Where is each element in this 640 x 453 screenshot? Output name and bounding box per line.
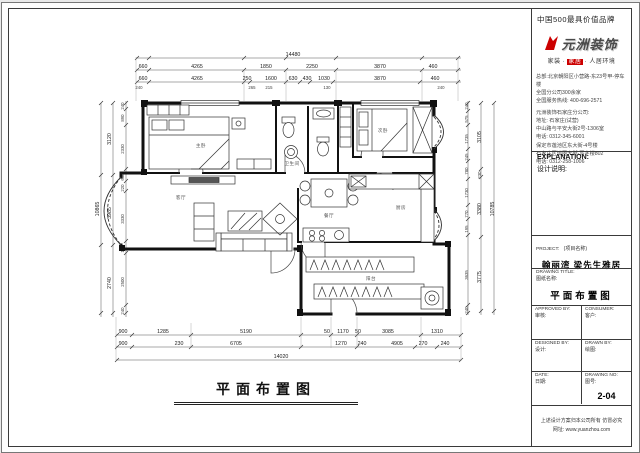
dim-label: 2330: [120, 144, 125, 154]
bed-icon: [149, 117, 229, 169]
consumer-cell: CONSUMER: 客户:: [581, 305, 631, 339]
dimension-top: [135, 56, 461, 101]
drawing-no-cn: 图号:: [585, 378, 628, 385]
dim-label: 1030: [318, 76, 330, 82]
dim-label: 14480: [286, 52, 301, 58]
dim-label: 240: [441, 341, 450, 347]
dim-label: 3120: [107, 133, 113, 145]
designed-by-cell: DESIGNED BY: 设计:: [532, 339, 581, 371]
dim-label: 5190: [240, 329, 252, 335]
project-section: PROJECT: (项目名称) 翰丽湾 梁先生雅居: [532, 235, 631, 267]
dim-label: 4905: [391, 341, 403, 347]
coffee-table-icon: [228, 211, 262, 231]
dim-label: 430: [303, 76, 312, 82]
dim-label: 4265: [191, 76, 203, 82]
dim-label: 890: [120, 114, 125, 122]
website-line: 网址: www.yuanzhou.com: [532, 426, 631, 435]
dim-label: 3870: [374, 76, 386, 82]
dim-label: 3870: [374, 64, 386, 70]
dim-label: 3085: [382, 329, 394, 335]
dim-label: 10865: [95, 202, 101, 217]
explanation-label: EXPLANATION:: [537, 154, 626, 161]
explanation-section: EXPLANATION: 设计说明:: [532, 151, 631, 185]
signature-table: APPROVED BY: 审核: CONSUMER: 客户: DESIGNED …: [532, 305, 631, 404]
dim-label: 240: [464, 102, 469, 110]
contact-line: 电话: 0312-345-6001: [536, 133, 627, 141]
tv-cabinet-icon: [171, 176, 235, 184]
dim-label: 3775: [477, 271, 483, 283]
wardrobe2-icon: [413, 107, 432, 153]
dim-label: 240: [120, 307, 125, 315]
dim-label: 6705: [230, 341, 242, 347]
explanation-sub: 设计说明:: [537, 164, 626, 174]
dim-label: 3635: [464, 270, 469, 280]
logo-tagline: 家装 · 家居 · 人居环境: [532, 56, 631, 65]
contact-line: 元洲装饰石家庄分公司:: [536, 109, 627, 117]
dim-label: 1600: [265, 76, 277, 82]
dim-label: 245: [464, 153, 469, 161]
designed-cn: 设计:: [535, 346, 578, 353]
date-cell: DATE: 日期:: [532, 371, 581, 404]
dim-label: 1735: [464, 134, 469, 144]
drawing-sheet: 14480 660 4265 1850 2250 3870 460 660 42…: [1, 2, 640, 453]
room-label: 次卧: [378, 127, 388, 134]
contact-line: 总部:北京朝阳区小营路-东23号甲-停车楼: [536, 73, 627, 89]
dim-label: 265: [248, 85, 256, 90]
dim-label: 240: [120, 102, 125, 110]
room-label: 阳台: [366, 275, 376, 282]
washbasin-icon: [313, 108, 334, 119]
dim-label: 3105: [477, 131, 483, 143]
contact-info: 总部:北京朝阳区小营路-东23号甲-停车楼 全国分公司300余家 全国服务热线:…: [532, 71, 631, 149]
floor-plan: 14480 660 4265 1850 2250 3870 460 660 42…: [31, 37, 531, 427]
dim-label: 4265: [191, 64, 203, 70]
drawing-no-cell: DRAWING NO: 图号: 2-04: [581, 371, 631, 404]
sheet-frame: 14480 660 4265 1850 2250 3870 460 660 42…: [8, 8, 632, 447]
dim-label: 575: [464, 115, 469, 123]
dim-label: 1730: [464, 188, 469, 198]
title-block: 中国500最具价值品牌 元洲装饰 家装 · 家居 · 人居环境 总部:北京朝阳区…: [531, 9, 631, 446]
dim-label: 130: [323, 85, 331, 90]
dim-label: 1170: [337, 329, 348, 335]
washing-machine-icon: [421, 287, 443, 309]
dim-label: 220: [120, 184, 125, 192]
nightstand-icon: [232, 118, 245, 129]
drawn-cn: 绘图:: [585, 346, 628, 353]
logo-flag-icon: [545, 36, 559, 51]
dim-label: 240: [437, 85, 445, 90]
plan-caption-text: 平面布置图: [174, 379, 358, 405]
dim-label: 900: [119, 341, 128, 347]
rug-icon: [263, 203, 297, 235]
copyright-footer: 上述设计方案归本公司所有 仿冒必究 网址: www.yuanzhou.com: [532, 405, 631, 445]
consumer-cn: 客户:: [585, 312, 628, 319]
dim-label: 215: [265, 85, 273, 90]
approved-cn: 审核:: [535, 312, 578, 319]
date-cn: 日期:: [535, 378, 578, 385]
dim-label: 14020: [274, 354, 289, 360]
toilet-icon: [282, 117, 295, 138]
room-label: 餐厅: [324, 212, 334, 219]
dim-label: 250: [243, 76, 252, 82]
dim-label: 630: [289, 76, 298, 82]
dim-label: 770: [464, 210, 469, 218]
sofa-icon: [216, 233, 292, 251]
dim-label: 3380: [477, 203, 483, 215]
room-label: 厨房: [396, 204, 406, 211]
dim-label: 230: [477, 171, 482, 179]
dim-label: 50: [324, 329, 330, 335]
dim-label: 780: [464, 167, 469, 175]
shower-icon: [340, 107, 351, 147]
drawing-title-section: DRAWING TITLE: 图纸名称: 平面布置图: [532, 268, 631, 304]
plan-caption: 平面布置图: [127, 379, 405, 405]
dim-label: 460: [431, 76, 440, 82]
tagline-mid: 家居: [567, 59, 582, 65]
dim-label: 230: [175, 341, 184, 347]
drawn-by-cell: DRAWN BY: 绘图:: [581, 339, 631, 371]
stove-icon: [303, 228, 349, 242]
dim-label: 50: [355, 329, 361, 335]
copyright-line: 上述设计方案归本公司所有 仿冒必究: [532, 417, 631, 426]
contact-line: 地址: 石家庄(试营): [536, 117, 627, 125]
dim-label: 270: [419, 341, 428, 347]
dim-label: 1285: [157, 329, 169, 335]
wardrobe-icon: [147, 105, 189, 115]
company-logo: 元洲装饰 家装 · 家居 · 人居环境: [532, 31, 631, 69]
project-sub: (项目名称): [564, 246, 587, 252]
project-label: PROJECT:: [536, 247, 559, 252]
approved-by-cell: APPROVED BY: 审核:: [532, 305, 581, 339]
drawing-no-value: 2-04: [585, 391, 628, 401]
dim-label: 3330: [120, 214, 125, 224]
dim-label: 240: [464, 306, 469, 314]
room-label: 客厅: [176, 194, 186, 201]
dim-label: 1270: [335, 341, 347, 347]
dim-label: 10785: [490, 202, 496, 217]
dim-label: 2500: [120, 277, 125, 287]
room-label: 主卧: [196, 142, 206, 149]
dim-label: 660: [139, 76, 148, 82]
tagline-left: 家装: [548, 59, 561, 65]
contact-line: 保定市莲池区东大街-4号楼: [536, 142, 627, 150]
dim-label: 195: [464, 225, 469, 233]
room-label: 卫生间: [284, 160, 299, 167]
sink-icon: [285, 146, 298, 159]
contact-line: 中山路与平安大街2号-1306室: [536, 125, 627, 133]
logo-name: 元洲装饰: [561, 34, 617, 53]
toilet2-icon: [317, 137, 329, 156]
dresser-icon: [237, 159, 271, 169]
kitchen-counter-icon: [349, 174, 434, 242]
contact-line: 全国分公司300余家: [536, 89, 627, 97]
contact-line: 全国服务热线: 400-696-2571: [536, 97, 627, 105]
tagline-right: 人居环境: [589, 59, 615, 65]
dim-label: 660: [139, 64, 148, 70]
dim-label: 460: [429, 64, 438, 70]
dim-label: 2740: [107, 277, 113, 289]
drawing-title-sub: 图纸名称:: [536, 275, 627, 282]
drawing-title-value: 平面布置图: [536, 288, 627, 302]
dim-label: 900: [119, 329, 128, 335]
dim-label: 1850: [260, 64, 272, 70]
dim-label: 240: [135, 85, 143, 90]
dim-label: 2250: [306, 64, 318, 70]
dim-label: 1310: [431, 329, 443, 335]
brand-slogan: 中国500最具价值品牌: [532, 11, 631, 29]
dimension-bottom: [115, 317, 463, 362]
bookshelf-icon: [194, 203, 214, 241]
dim-label: 240: [358, 341, 367, 347]
